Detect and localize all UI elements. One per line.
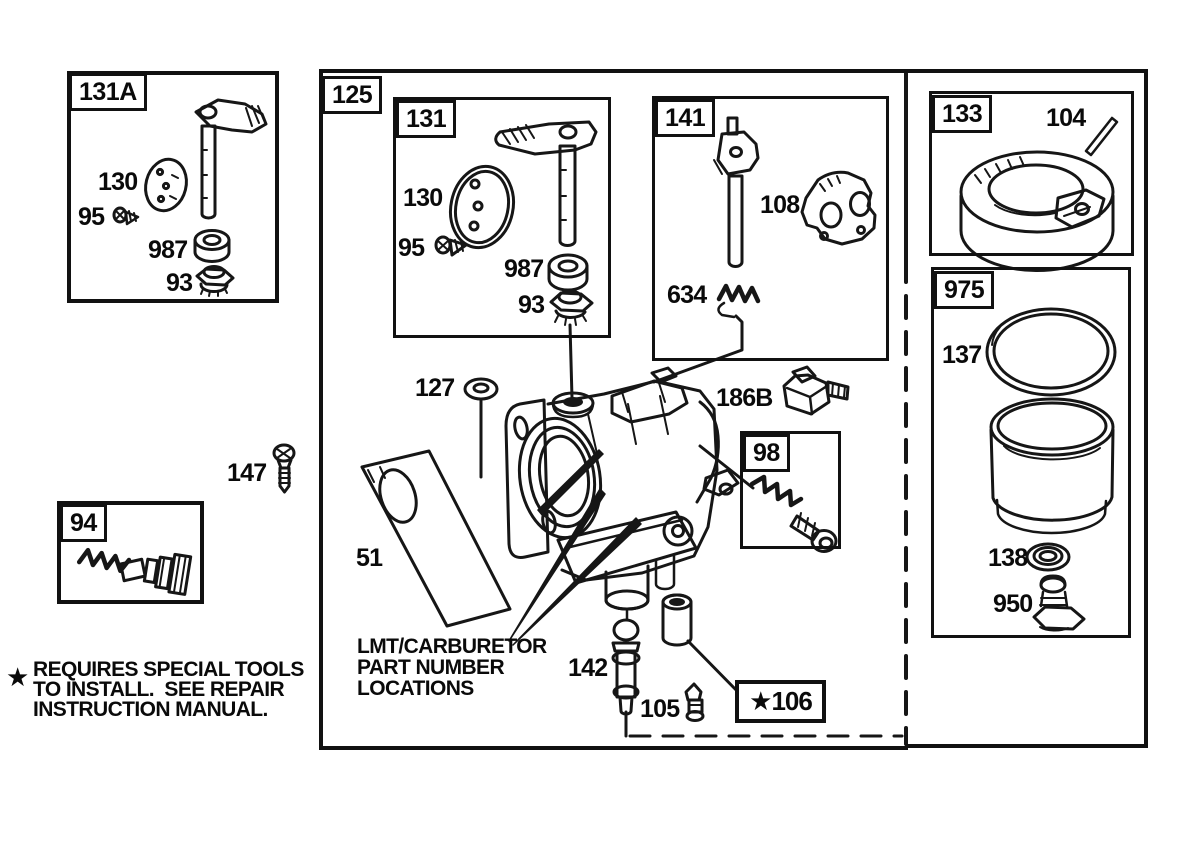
part-label-147: 147 [227,461,266,486]
group-label-125: 125 [322,76,382,114]
part-label-987-a: 987 [148,238,187,263]
group-label-106-starred: ★106 [735,680,826,723]
part-label-137: 137 [942,343,981,368]
part-label-104: 104 [1046,106,1085,131]
part-label-142: 142 [568,656,607,681]
part-label-987: 987 [504,257,543,282]
group-label-131: 131 [396,100,456,138]
part-label-138: 138 [988,546,1027,571]
star-icon: ★ [6,662,29,693]
carburetor-parts-diagram: 131A 125 131 141 98 94 133 975 ★106 130 … [0,0,1200,849]
group-label-94: 94 [60,504,107,542]
part-label-51: 51 [356,546,382,571]
part-label-108: 108 [760,193,799,218]
group-box-975 [931,267,1131,638]
part-label-93-a: 93 [166,271,192,296]
part-label-130: 130 [403,186,442,211]
group-label-98: 98 [743,434,790,472]
special-tools-footnote: ★ REQUIRES SPECIAL TOOLS TO INSTALL. SEE… [6,660,304,720]
part-label-95-a: 95 [78,205,104,230]
caption-part-number-locations: LMT/CARBURETOR PART NUMBER LOCATIONS [357,636,547,699]
group-label-133: 133 [932,95,992,133]
part-label-95: 95 [398,236,424,261]
caption-line-3: LOCATIONS [357,678,547,699]
part-label-186b: 186B [716,386,773,411]
footnote-line-3: INSTRUCTION MANUAL. [33,700,304,720]
caption-line-2: PART NUMBER [357,657,547,678]
part-label-105: 105 [640,697,679,722]
part-label-634: 634 [667,283,706,308]
part-label-950: 950 [993,592,1032,617]
group-label-975: 975 [934,271,994,309]
part-label-130-a: 130 [98,170,137,195]
footnote-line-2: TO INSTALL. SEE REPAIR [33,680,304,700]
group-label-141: 141 [655,99,715,137]
footnote-line-1: REQUIRES SPECIAL TOOLS [33,660,304,680]
caption-line-1: LMT/CARBURETOR [357,636,547,657]
part-label-127: 127 [415,376,454,401]
group-label-131a: 131A [69,73,147,111]
bowl-screw-icon [274,445,294,492]
part-label-93: 93 [518,293,544,318]
